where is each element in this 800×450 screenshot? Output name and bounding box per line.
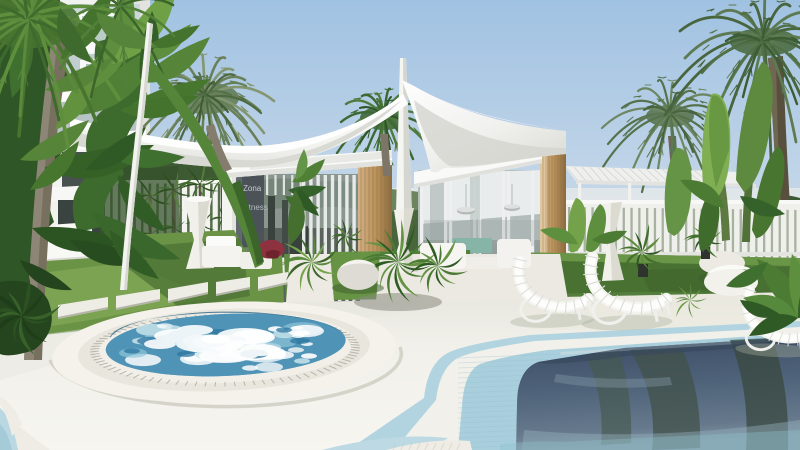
svg-text:Zona: Zona (243, 184, 262, 193)
